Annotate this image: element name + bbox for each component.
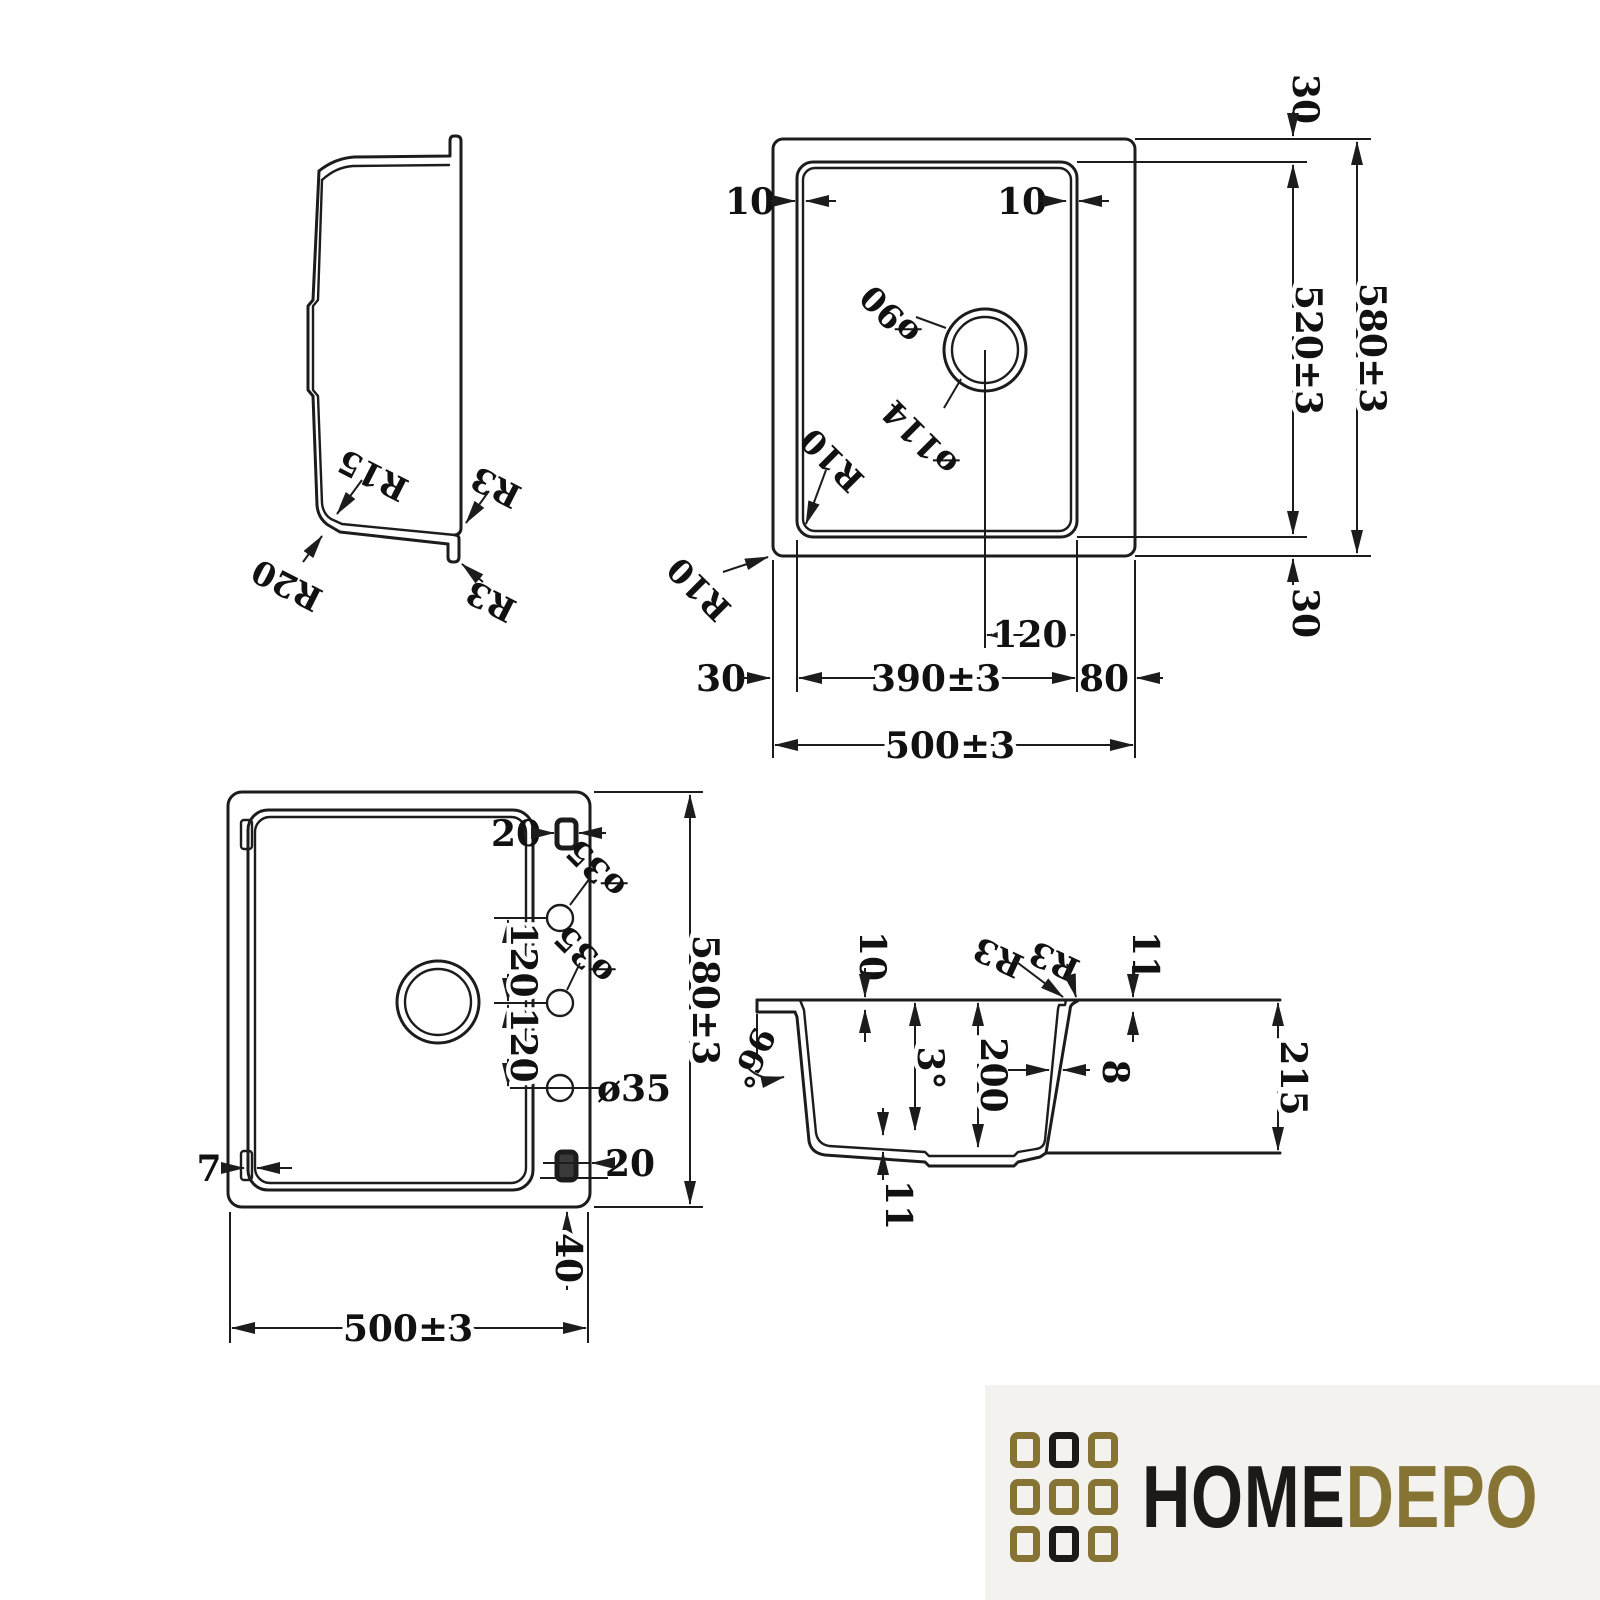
top-dim-500: 500±3 bbox=[885, 725, 1015, 767]
side-profile-view: R15 R20 R3 R3 bbox=[245, 136, 527, 630]
sec-r3-b: R3 bbox=[1023, 933, 1085, 990]
bottom-dia-35-a: ø35 bbox=[558, 831, 634, 907]
logo-grid-square bbox=[1088, 1526, 1118, 1562]
bottom-dim-20-bottom: 20 bbox=[605, 1143, 655, 1185]
logo-grid-square bbox=[1010, 1479, 1040, 1515]
bottom-dim-40: 40 bbox=[547, 1233, 589, 1283]
sec-dim-10: 10 bbox=[851, 931, 893, 981]
sec-r3-a: R3 bbox=[967, 929, 1029, 986]
sec-dim-11-top: 11 bbox=[1124, 931, 1166, 981]
logo-grid-square bbox=[1010, 1432, 1040, 1468]
side-r20-label: R20 bbox=[245, 551, 328, 619]
bottom-dim-7: 7 bbox=[196, 1148, 221, 1190]
top-dia-114: ø114 bbox=[874, 392, 966, 484]
logo-grid-icon bbox=[1010, 1432, 1118, 1562]
clip-top-right bbox=[557, 820, 576, 848]
logo-word-home: HOME bbox=[1142, 1447, 1346, 1546]
logo-wordmark: HOMEDEPO bbox=[1142, 1462, 1538, 1532]
logo-word-depo: DEPO bbox=[1346, 1447, 1539, 1546]
side-r3-bottom-label: R3 bbox=[459, 572, 522, 630]
clip-bottom-right bbox=[557, 1152, 576, 1180]
section-view: 10 R3 R3 11 96° 3° 200 8 215 11 bbox=[722, 929, 1314, 1230]
sec-angle-96: 96° bbox=[722, 1021, 784, 1094]
top-dim-30-top: 30 bbox=[1284, 74, 1326, 124]
top-dim-30-left: 30 bbox=[696, 658, 746, 700]
top-plan-view: 10 10 ø90 ø114 R10 R10 30 520±3 580±3 30… bbox=[659, 74, 1393, 767]
top-dim-10-right: 10 bbox=[997, 181, 1047, 223]
top-dim-10-left: 10 bbox=[725, 181, 775, 223]
top-r10-outer: R10 bbox=[659, 549, 738, 628]
bottom-dim-120-a: 120 bbox=[502, 922, 544, 997]
bottom-dim-500: 500±3 bbox=[343, 1308, 473, 1350]
top-dim-120: 120 bbox=[992, 614, 1067, 656]
logo-grid-square bbox=[1049, 1526, 1079, 1562]
top-dim-80: 80 bbox=[1079, 658, 1129, 700]
logo-grid-square bbox=[1049, 1432, 1079, 1468]
side-r15-label: R15 bbox=[331, 441, 414, 509]
logo-grid-square bbox=[1049, 1479, 1079, 1515]
sec-dim-215: 215 bbox=[1272, 1040, 1314, 1115]
sec-dim-11-bottom: 11 bbox=[877, 1180, 919, 1230]
top-dim-580: 580±3 bbox=[1351, 283, 1393, 413]
bottom-dim-120-b: 120 bbox=[502, 1007, 544, 1082]
top-dim-30-bottom: 30 bbox=[1284, 588, 1326, 638]
side-r3-top-label: R3 bbox=[464, 458, 527, 516]
top-dim-390: 390±3 bbox=[871, 658, 1001, 700]
bottom-dia-35-b: ø35 bbox=[546, 917, 622, 993]
logo-grid-square bbox=[1088, 1479, 1118, 1515]
tap-hole-2 bbox=[547, 990, 573, 1016]
sink-drawing-svg: R15 R20 R3 R3 10 10 ø90 ø114 bbox=[0, 0, 1600, 1600]
bottom-dia-35-c: ø35 bbox=[597, 1068, 671, 1110]
sec-angle-3: 3° bbox=[909, 1046, 951, 1089]
sec-dim-8: 8 bbox=[1094, 1059, 1136, 1084]
bottom-view: 120 120 ø35 ø35 ø35 20 20 7 40 580±3 500… bbox=[196, 792, 726, 1350]
top-dia-90: ø90 bbox=[852, 277, 928, 353]
logo-grid-square bbox=[1088, 1432, 1118, 1468]
bottom-dim-580: 580±3 bbox=[684, 935, 726, 1065]
logo-grid-square bbox=[1010, 1526, 1040, 1562]
top-dim-520: 520±3 bbox=[1287, 285, 1329, 415]
sec-dim-200: 200 bbox=[972, 1037, 1014, 1112]
technical-drawing-page: R15 R20 R3 R3 10 10 ø90 ø114 bbox=[0, 0, 1600, 1600]
